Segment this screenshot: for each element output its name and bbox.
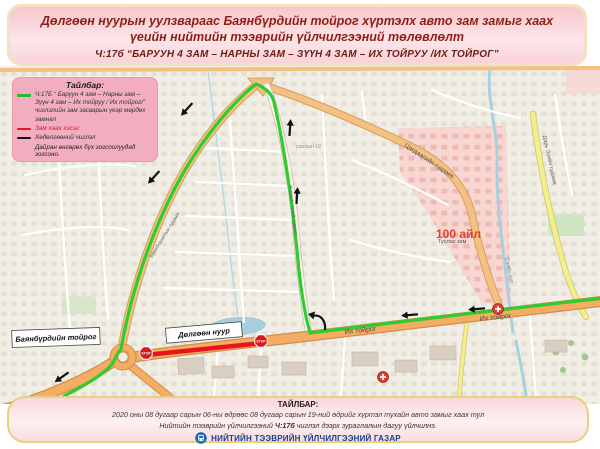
footer-note-box: ТАЙЛБАР: 2020 оны 08 дугаар сарын 06-ны … — [7, 396, 589, 443]
footer-line2-prefix: Нийтийн тээврийн үйлчилгээний — [159, 421, 275, 430]
stop-sign-west: STOP — [140, 347, 152, 359]
district-pink-topright — [566, 68, 600, 94]
label-tuslah-zam: Туслах зам — [438, 239, 467, 245]
svg-text:STOP: STOP — [256, 339, 266, 343]
legend-route-text: Ч:17Б “ Баруун 4 зам – Нарны зам – Зүүн … — [35, 91, 153, 124]
road-top — [0, 68, 600, 70]
legend-item-route: Ч:17Б “ Баруун 4 зам – Нарны зам – Зүүн … — [17, 91, 153, 124]
poster-title: Дөлгөөн нуурын уулзвараас Баянбүрдийн то… — [36, 14, 558, 45]
legend-item-closed: Зам хаах хэсэг — [17, 125, 153, 133]
bayanburd-callout: Баянбүрдийн тойрог — [12, 327, 101, 347]
legend-direction-text: Хөдөлгөөний чиглэл — [35, 134, 95, 142]
header-banner: Дөлгөөн нуурын уулзвараас Баянбүрдийн то… — [7, 4, 587, 66]
footer-line2-suffix: чиглэл дээрх зураглалын дагуу үйлчилнэ. — [295, 421, 437, 430]
legend-box: Тайлбар: Ч:17Б “ Баруун 4 зам – Нарны за… — [12, 77, 158, 162]
footer-route-code: Ч:17б — [275, 421, 295, 430]
legend-note: Дайран өнгөрөх бүх зогсоолуудад зогсоно. — [35, 144, 153, 158]
bus-agency-logo-icon — [195, 432, 207, 444]
legend-title: Тайлбар: — [17, 80, 153, 90]
legend-item-direction: Хөдөлгөөний чиглэл — [17, 134, 153, 142]
stop-sign-east: STOP — [255, 335, 267, 347]
route-subtitle: Ч:17б “БАРУУН 4 ЗАМ – НАРНЫ ЗАМ – ЗҮҮН 4… — [36, 49, 558, 60]
direction-line-swatch — [17, 137, 31, 140]
poster: STOP STOP Их — [0, 0, 600, 449]
agency-row: НИЙТИЙН ТЭЭВРИЙН ҮЙЛЧИЛГЭЭНИЙ ГАЗАР — [9, 432, 587, 444]
svg-text:STOP: STOP — [141, 351, 151, 355]
footer-title: ТАЙЛБАР: — [9, 400, 587, 409]
footer-line1: 2020 оны 08 дугаар сарын 06-ны өдрөөс 08… — [9, 410, 587, 419]
route-line-swatch — [17, 94, 31, 97]
footer-line2: Нийтийн тээврийн үйлчилгээний Ч:17б чигл… — [9, 421, 587, 430]
hospital-icon — [378, 372, 389, 383]
label-rashaan: рашаан 18 — [296, 144, 321, 150]
agency-name: НИЙТИЙН ТЭЭВРИЙН ҮЙЛЧИЛГЭЭНИЙ ГАЗАР — [211, 434, 401, 443]
map-canvas: STOP STOP Их — [0, 0, 600, 449]
closed-line-swatch — [17, 128, 31, 131]
legend-closed-text: Зам хаах хэсэг — [35, 125, 79, 133]
